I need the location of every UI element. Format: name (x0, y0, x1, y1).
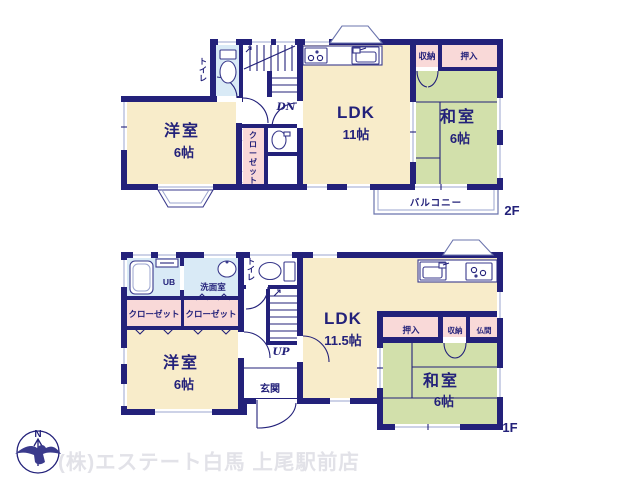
closet-left-label-1f: クローゼット (128, 309, 179, 319)
floorplan-page: (株)エステート白馬 上尾駅前店 (0, 0, 640, 480)
range-hood-2f (330, 26, 382, 43)
floorplan-canvas: (株)エステート白馬 上尾駅前店 (0, 0, 640, 480)
bathtub-icon-1f (130, 261, 153, 294)
floor-label-2f: 2F (504, 203, 519, 218)
washitsu-label-2f: 和室 (440, 107, 476, 126)
toilet-label-2f: トイレ (199, 57, 207, 83)
company-watermark: (株)エステート白馬 上尾駅前店 (58, 450, 360, 474)
toilet-icon-2f (220, 50, 236, 83)
shuno-label-1f: 収納 (448, 325, 463, 335)
stairs-1f: UP (270, 290, 297, 358)
ldk-size-2f: 11帖 (343, 127, 370, 142)
shuno-label-2f: 収納 (418, 51, 435, 61)
oshiire-label-2f: 押入 (460, 51, 478, 61)
senmen-label-1f: 洗面室 (200, 282, 226, 292)
ldk-label-2f: LDK (337, 103, 375, 122)
floor-2f: DN (121, 26, 520, 218)
room-washitsu-2f (416, 71, 497, 184)
toilet-icon-1f (259, 262, 295, 281)
ldk-size-1f: 11.5帖 (324, 333, 362, 348)
closet-right-label-1f: クローゼット (185, 309, 236, 319)
toilet-label-1f: トイレ (247, 257, 255, 282)
stairs-up-label: UP (272, 346, 290, 358)
yoshitsu-size-2f: 6帖 (174, 145, 194, 160)
floor-label-1f: 1F (502, 420, 517, 435)
yoshitsu-size-1f: 6帖 (174, 377, 194, 392)
butsuma-label-1f: 仏間 (476, 326, 492, 335)
oshiire-label-1f: 押入 (402, 325, 420, 335)
room-yoshitsu-2f (127, 102, 236, 184)
ldk-label-1f: LDK (324, 309, 362, 328)
washitsu-size-1f: 6帖 (434, 394, 454, 409)
range-hood-1f (443, 240, 493, 255)
yoshitsu-label-2f: 洋室 (164, 121, 200, 140)
bay-window-2f (158, 190, 213, 207)
bird-silhouette-icon (15, 445, 61, 464)
yoshitsu-label-1f: 洋室 (163, 353, 199, 372)
compass: N (15, 429, 61, 473)
stove-icon-2f (305, 48, 327, 63)
stove-icon-1f (466, 263, 492, 280)
genkan-label-1f: 玄関 (260, 382, 280, 395)
washer-pan-icon-1f (156, 259, 178, 267)
basin-icon-1f (218, 261, 236, 278)
balcony-label: バルコニー (410, 197, 462, 209)
washitsu-label-1f: 和室 (423, 371, 459, 390)
ub-label-1f: UB (163, 277, 175, 287)
closet-label-2f: クローゼット (249, 130, 257, 185)
washitsu-size-2f: 6帖 (450, 131, 470, 146)
balcony-2f: バルコニー (374, 190, 498, 214)
kitchen-sink-icon-2f (352, 47, 379, 64)
floor-1f: UP (121, 240, 518, 435)
kitchen-sink-icon-1f (420, 262, 449, 280)
